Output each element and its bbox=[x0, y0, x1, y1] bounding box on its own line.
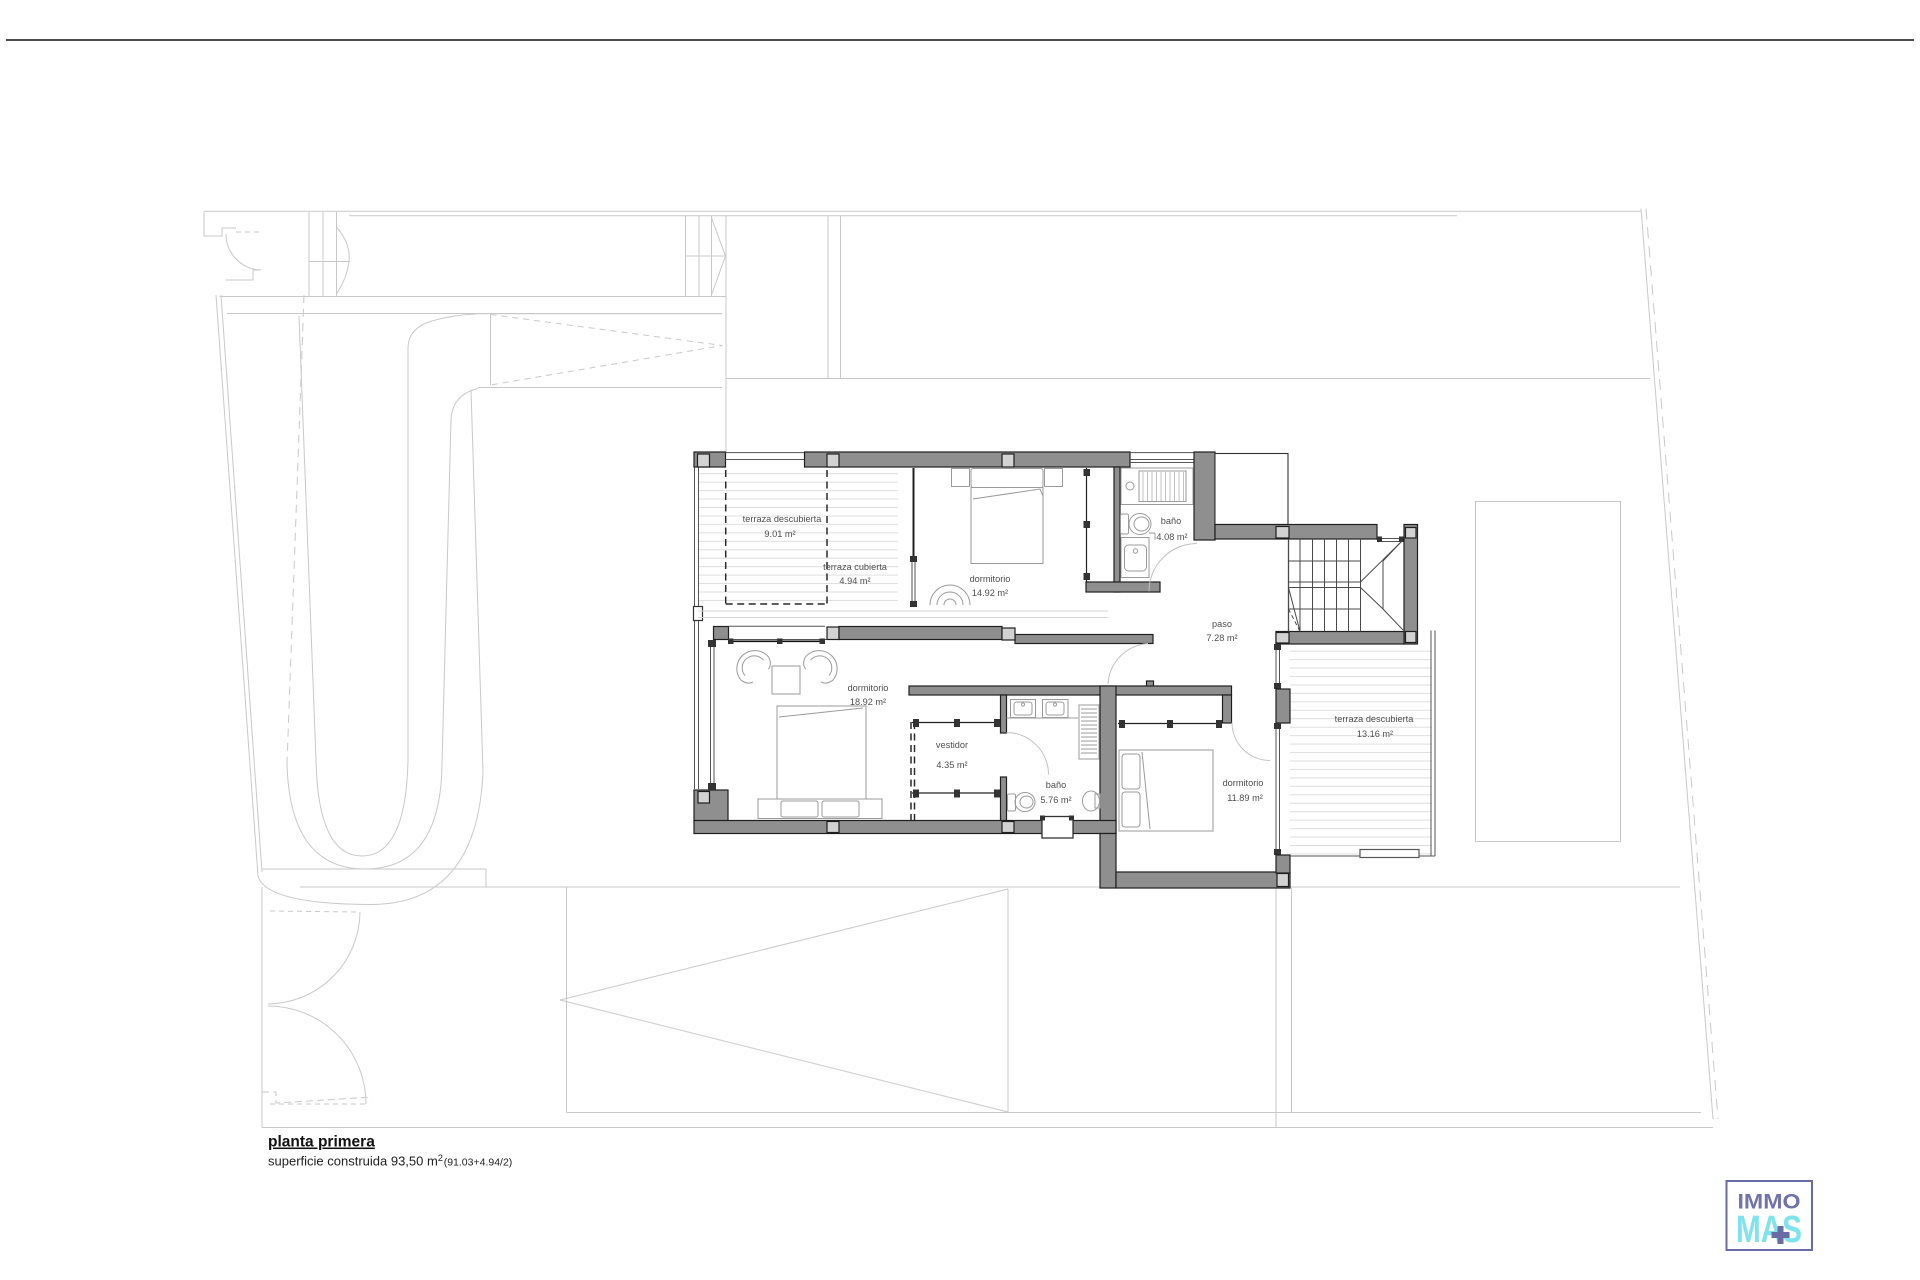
svg-text:7.28 m²: 7.28 m² bbox=[1206, 633, 1237, 643]
svg-text:14.92 m²: 14.92 m² bbox=[972, 588, 1008, 598]
svg-text:baño: baño bbox=[1161, 516, 1181, 526]
svg-text:18.92 m²: 18.92 m² bbox=[850, 697, 886, 707]
svg-text:13.16 m²: 13.16 m² bbox=[1357, 729, 1393, 739]
svg-text:9.01 m²: 9.01 m² bbox=[764, 529, 795, 539]
svg-text:paso: paso bbox=[1212, 619, 1232, 629]
svg-text:5.76 m²: 5.76 m² bbox=[1040, 795, 1071, 805]
svg-text:MAS: MAS bbox=[1736, 1209, 1802, 1251]
svg-text:11.89 m²: 11.89 m² bbox=[1227, 793, 1263, 803]
svg-text:4.35 m²: 4.35 m² bbox=[936, 760, 967, 770]
svg-text:4.08 m²: 4.08 m² bbox=[1156, 532, 1187, 542]
svg-text:4.94 m²: 4.94 m² bbox=[839, 576, 870, 586]
svg-text:dormitorio: dormitorio bbox=[970, 574, 1011, 584]
svg-text:dormitorio: dormitorio bbox=[1223, 778, 1264, 788]
svg-text:vestidor: vestidor bbox=[936, 740, 968, 750]
svg-text:terraza cubierta: terraza cubierta bbox=[823, 562, 888, 572]
svg-text:dormitorio: dormitorio bbox=[848, 683, 889, 693]
svg-text:baño: baño bbox=[1046, 780, 1066, 790]
svg-text:planta primera: planta primera bbox=[268, 1134, 375, 1151]
svg-text:terraza descubierta: terraza descubierta bbox=[1335, 714, 1415, 724]
svg-text:terraza descubierta: terraza descubierta bbox=[743, 514, 823, 524]
